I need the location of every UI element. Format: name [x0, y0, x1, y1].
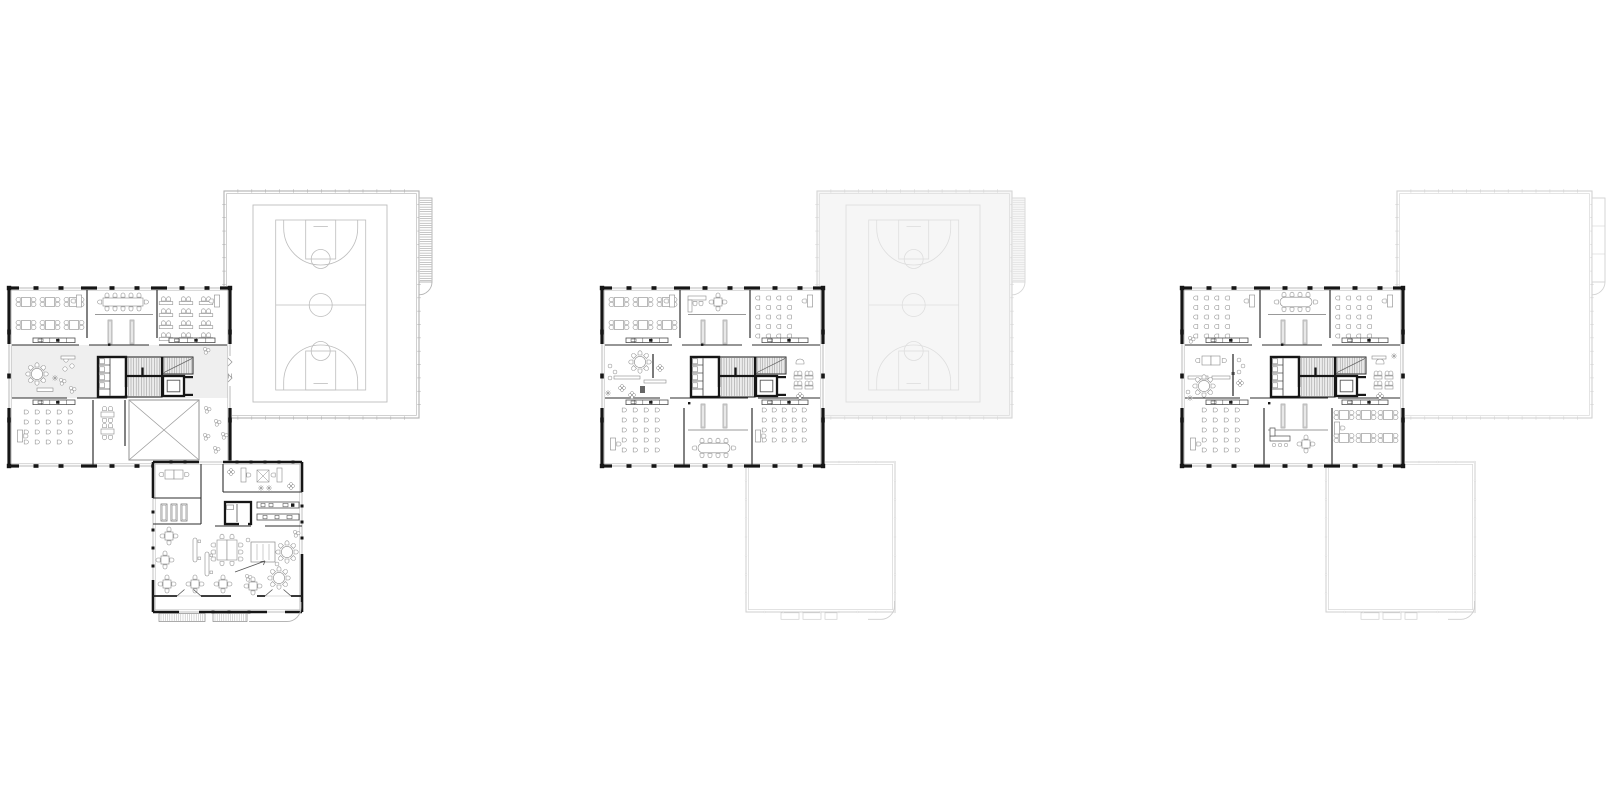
floor-plan-second: [1180, 189, 1605, 619]
floor-plan-first: [600, 189, 1025, 619]
entrance-wing: [152, 461, 304, 622]
stair-core: [1271, 357, 1366, 397]
gymnasium: [222, 189, 432, 420]
entrance-wing-roof: [745, 461, 896, 619]
gymnasium: [815, 189, 1025, 420]
floor-plans-canvas: [0, 0, 1612, 806]
stair-core: [691, 357, 786, 397]
floor-plan-sheet: [0, 0, 1612, 806]
main-building: [7, 286, 232, 469]
stair-core: [98, 357, 193, 397]
main-building: [1180, 286, 1405, 468]
main-building: [600, 286, 825, 468]
entrance-wing-roof: [1325, 461, 1476, 619]
gymnasium: [1395, 189, 1605, 420]
floor-plan-ground: [7, 189, 432, 621]
